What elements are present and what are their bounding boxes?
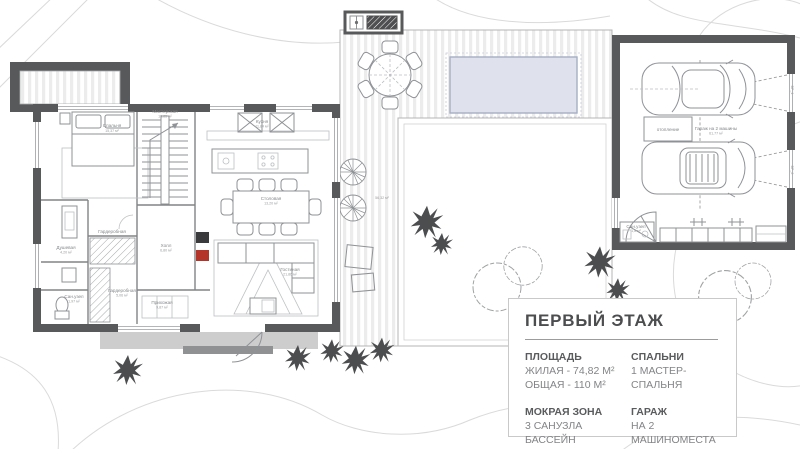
bush-icon [113, 355, 143, 385]
page-title: ПЕРВЫЙ ЭТАЖ [525, 311, 718, 331]
legend-panel: ПЕРВЫЙ ЭТАЖ ПЛОЩАДЬ ЖИЛАЯ - 74,82 М² ОБЩ… [508, 298, 737, 437]
section-line: ОБЩАЯ - 110 М² [525, 379, 625, 393]
svg-text:4,20 м²: 4,20 м² [60, 251, 72, 255]
svg-text:ВР_2: ВР_2 [790, 166, 794, 175]
svg-text:9,87 м²: 9,87 м² [156, 306, 168, 310]
section-line: ЖИЛАЯ - 74,82 М² [525, 365, 625, 379]
garage: отопление Гараж на 2 машины 61,77 м² Сан… [612, 35, 795, 250]
wall-panel-red [196, 250, 209, 261]
svg-text:Прихожая: Прихожая [151, 300, 173, 305]
bbq-annex [345, 12, 402, 33]
car-2 [642, 139, 755, 197]
svg-text:1,8 м²: 1,8 м² [631, 229, 641, 233]
svg-text:Кухня: Кухня [256, 119, 269, 124]
svg-text:11,84 м²: 11,84 м² [255, 125, 269, 129]
svg-text:Гостиная: Гостиная [280, 267, 300, 272]
legend-section-wet-zone: МОКРАЯ ЗОНА 3 САНУЗЛА БАССЕЙН [525, 406, 625, 449]
svg-text:5,06 м²: 5,06 м² [116, 294, 128, 298]
svg-text:15,37 м²: 15,37 м² [105, 129, 119, 133]
wall-panel-black [196, 232, 209, 243]
porch [100, 332, 318, 362]
svg-text:Гардеробная: Гардеробная [98, 229, 126, 234]
legend-section-bedrooms: СПАЛЬНИ 1 МАСТЕР-СПАЛЬНЯ [631, 351, 718, 393]
floor-plan-page: 56,32 м² [0, 0, 800, 449]
svg-text:ВР_1: ВР_1 [790, 86, 794, 95]
svg-text:61,77 м²: 61,77 м² [709, 132, 723, 136]
title-divider [525, 339, 718, 340]
svg-text:Гараж на 2 машины: Гараж на 2 машины [695, 126, 737, 131]
svg-text:Холл: Холл [161, 243, 172, 248]
section-line: НА 2 МАШИНОМЕСТА [631, 420, 718, 448]
svg-text:Гардеробная: Гардеробная [108, 288, 136, 293]
svg-text:1,97 м²: 1,97 м² [68, 300, 80, 304]
svg-text:Столовая: Столовая [261, 196, 282, 201]
section-heading: СПАЛЬНИ [631, 351, 718, 363]
svg-text:21,86 м²: 21,86 м² [283, 273, 297, 277]
legend-section-area: ПЛОЩАДЬ ЖИЛАЯ - 74,82 М² ОБЩАЯ - 110 М² [525, 351, 625, 393]
svg-text:13,20 м²: 13,20 м² [264, 202, 278, 206]
section-heading: ГАРАЖ [631, 406, 718, 418]
section-line: БАССЕЙН [525, 434, 625, 448]
svg-text:отопление: отопление [657, 127, 680, 132]
swimming-pool [446, 53, 581, 117]
svg-text:Спальня: Спальня [103, 123, 122, 128]
section-heading: ПЛОЩАДЬ [525, 351, 625, 363]
tree-outline-icon [735, 263, 771, 299]
section-heading: МОКРАЯ ЗОНА [525, 406, 625, 418]
svg-text:13,85 м²: 13,85 м² [158, 115, 172, 119]
terrace-area-label: 56,32 м² [375, 196, 389, 200]
legend-section-garage: ГАРАЖ НА 2 МАШИНОМЕСТА ПЛОЩАДЬ - 61 М² [631, 406, 718, 449]
car-1 [642, 60, 755, 118]
svg-text:Душевая: Душевая [56, 245, 76, 250]
svg-text:Мастерская: Мастерская [152, 109, 178, 114]
section-line: 3 САНУЗЛА [525, 420, 625, 434]
section-line: 1 МАСТЕР-СПАЛЬНЯ [631, 365, 718, 393]
svg-text:6,80 м²: 6,80 м² [160, 249, 172, 253]
bush-icon [342, 346, 371, 375]
svg-text:Сан.узел: Сан.узел [64, 294, 83, 299]
